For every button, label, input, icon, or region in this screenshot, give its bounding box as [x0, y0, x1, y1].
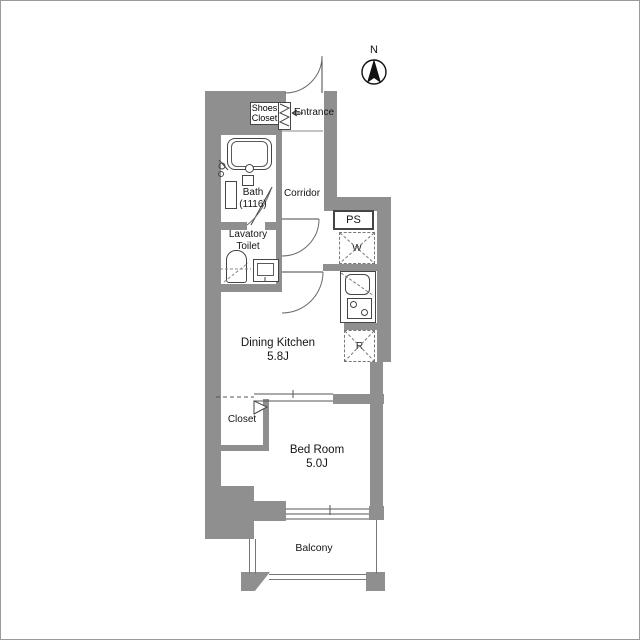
fridge-space: R: [344, 330, 375, 362]
pipe-space-label: PS: [344, 214, 363, 226]
wall-bath-bottom-stub: [265, 222, 282, 230]
kitchen-sink: [345, 274, 370, 295]
dining-kitchen-door: [282, 272, 323, 313]
bath-counter: [225, 181, 237, 209]
wall-bath-top: [205, 125, 282, 135]
bath-label-line1: Bath: [239, 187, 266, 199]
toilet: [226, 250, 247, 283]
pipe-space-box: PS: [333, 210, 374, 230]
corridor-label: Corridor: [284, 188, 320, 200]
wall-closet-right: [263, 399, 269, 451]
lavatory-sink-basin: [257, 263, 274, 276]
wall-bottom-left-block: [205, 486, 254, 539]
closet-label: Closet: [228, 414, 256, 426]
wall-above-fridge: [344, 323, 377, 330]
stove-burner-1: [350, 301, 357, 308]
wall-dk-bedroom-divider: [333, 394, 384, 404]
fridge-label: R: [354, 341, 365, 352]
shoes-cabinet: [278, 102, 291, 130]
bath-label-line2: (1116): [239, 199, 266, 211]
washer-space: W: [339, 232, 375, 264]
dining-kitchen-label-line2: 5.8J: [241, 351, 315, 365]
lavatory-label: Lavatory Toilet: [229, 229, 267, 253]
entrance-door: [285, 56, 322, 93]
wall-right-kitchen: [377, 197, 391, 362]
compass-icon: [362, 59, 386, 84]
shoes-closet-label-box: Shoes Closet: [250, 102, 279, 125]
bath-label: Bath (1116): [239, 187, 266, 211]
wall-bottom-left-step: [254, 501, 286, 521]
bath-faucet: [245, 164, 254, 173]
shoes-closet-label-line2: Closet: [252, 114, 278, 124]
dining-kitchen-label-line1: Dining Kitchen: [241, 337, 315, 351]
balcony-pillar-left: [241, 572, 270, 591]
entrance-label: Entrance: [294, 107, 334, 119]
wall-window-right-stub: [369, 506, 384, 520]
balcony-pillar-right: [366, 572, 385, 591]
bedroom-label-line1: Bed Room: [290, 444, 344, 458]
lavatory-label-line2: Toilet: [229, 241, 267, 253]
wall-below-washer: [323, 264, 377, 271]
washer-label: W: [350, 243, 363, 254]
wall-right-lower: [370, 362, 383, 509]
balcony-rail-right: [376, 520, 377, 574]
lavatory-door: [282, 219, 319, 256]
bedroom-label-line2: 5.0J: [290, 458, 344, 472]
wall-top-band: [250, 91, 286, 102]
balcony-rail-left: [249, 539, 256, 574]
wall-closet-bottom: [221, 445, 269, 451]
balcony-label: Balcony: [295, 542, 332, 554]
bath-step: [242, 175, 254, 186]
floor-plan: PS W R: [0, 0, 640, 640]
compass-north-label: N: [370, 44, 378, 57]
stove-burner-2: [361, 309, 368, 316]
wall-lavatory-bottom: [205, 284, 282, 292]
balcony-window: [286, 505, 369, 519]
lavatory-label-line1: Lavatory: [229, 229, 267, 241]
dining-kitchen-label: Dining Kitchen 5.8J: [241, 337, 315, 364]
balcony-rail-bottom: [269, 574, 366, 580]
bedroom-label: Bed Room 5.0J: [290, 444, 344, 471]
